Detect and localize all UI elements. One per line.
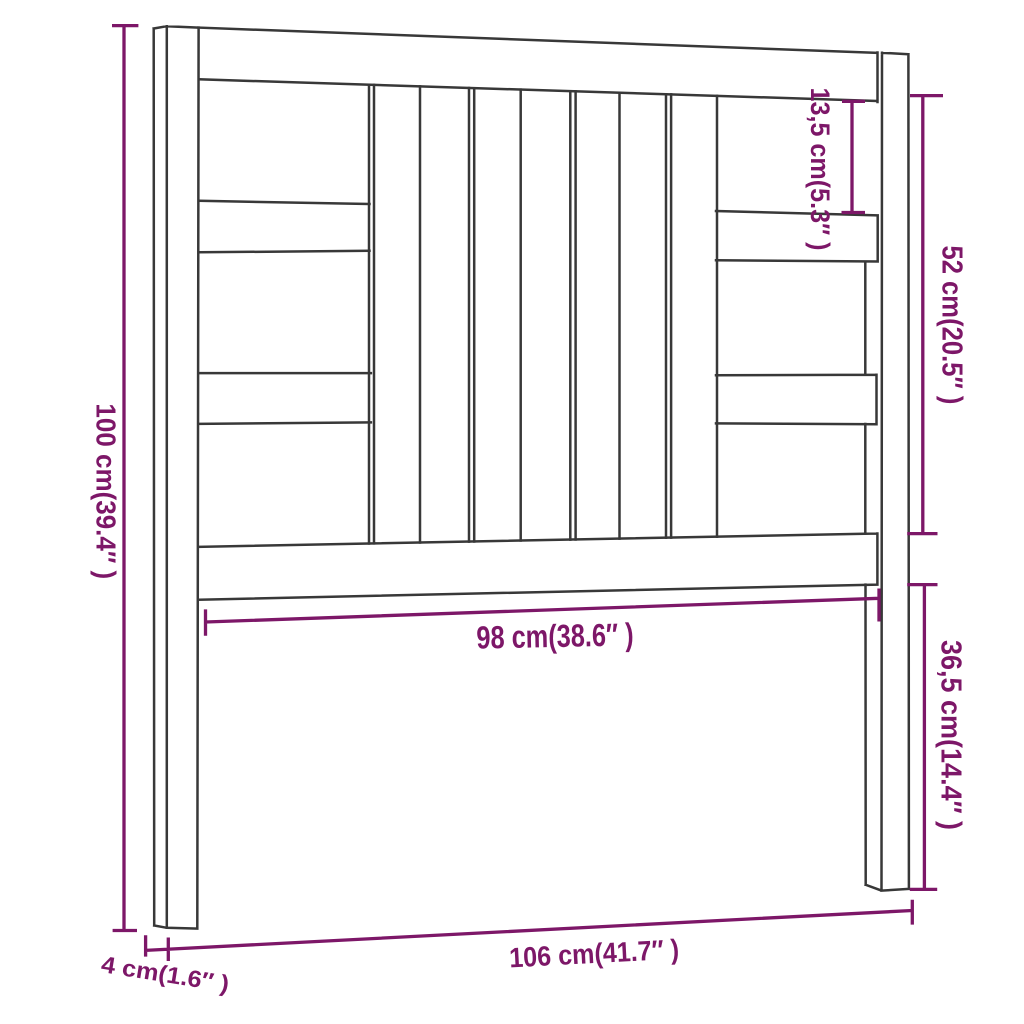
svg-text:106 cm(41.7″ ): 106 cm(41.7″ ) (508, 934, 679, 974)
svg-text:4 cm(1.6″ ): 4 cm(1.6″ ) (100, 951, 231, 997)
svg-text:52 cm(20.5″ ): 52 cm(20.5″ ) (936, 245, 968, 404)
svg-text:100 cm(39.4″ ): 100 cm(39.4″ ) (91, 403, 122, 579)
svg-text:36,5 cm(14.4″ ): 36,5 cm(14.4″ ) (935, 640, 967, 830)
svg-text:98 cm(38.6″ ): 98 cm(38.6″ ) (476, 616, 634, 655)
svg-text:13,5 cm(5.3″ ): 13,5 cm(5.3″ ) (805, 88, 835, 251)
